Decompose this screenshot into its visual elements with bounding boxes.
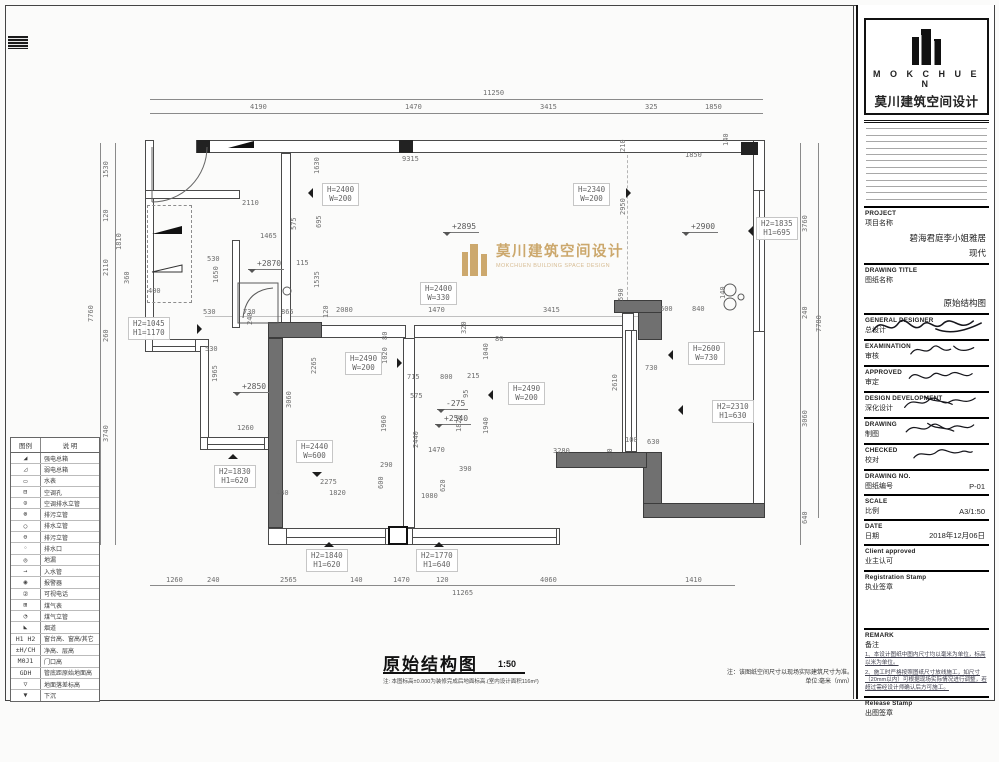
dim-label: 120 bbox=[323, 305, 330, 318]
dim-label: 3280 bbox=[553, 448, 570, 455]
dim-label: 730 bbox=[645, 365, 658, 372]
address-line bbox=[866, 148, 987, 149]
dim-label: 600 bbox=[660, 306, 673, 313]
spec-line2: H1=620 bbox=[311, 560, 343, 569]
legend-symbol-icon: ◦ bbox=[11, 543, 41, 553]
legend-row: ⊖排污立管 bbox=[11, 532, 99, 543]
spec-line1: H=2490 bbox=[513, 384, 540, 393]
legend-symbol-icon: ◉ bbox=[11, 577, 41, 587]
spec-line1: H=2440 bbox=[301, 442, 328, 451]
legend-header: 图例 说 明 bbox=[11, 438, 99, 453]
dim-label: 2275 bbox=[320, 479, 337, 486]
dim-label: 11250 bbox=[483, 90, 504, 97]
dim-label: 800 bbox=[440, 374, 453, 381]
address-line bbox=[866, 154, 987, 155]
leader-arrow-icon bbox=[434, 537, 444, 547]
spec-line2: H1=630 bbox=[717, 411, 749, 420]
spec-line1: H=2490 bbox=[350, 354, 377, 363]
legend-symbol-icon: → bbox=[11, 566, 41, 576]
dim-label: 2265 bbox=[311, 357, 318, 374]
address-line bbox=[866, 167, 987, 168]
legend-body: ◢强电总箱◿弱电总箱▭水表⊟空调孔⊙空调排水立管⊗排污立管○排水立管⊖排污立管◦… bbox=[11, 453, 99, 701]
entry-door-arc bbox=[152, 147, 207, 202]
dim-label: 4190 bbox=[250, 104, 267, 111]
dim-label: 210 bbox=[620, 139, 627, 152]
spec-label: H=2490W=200 bbox=[508, 382, 545, 405]
brand-logo-icon bbox=[460, 240, 490, 278]
dim-label: 100 bbox=[625, 437, 638, 444]
dim-label: 360 bbox=[124, 271, 131, 284]
dim-label: 80 bbox=[382, 332, 389, 340]
brand-buildings-icon bbox=[906, 27, 948, 67]
legend-label: 煤气表 bbox=[41, 601, 99, 610]
watermark-cn: 莫川建筑空间设计 bbox=[496, 240, 624, 261]
address-line bbox=[866, 180, 987, 181]
spec-line2: H1=695 bbox=[761, 228, 793, 237]
unit-note-line2: 单位:毫米（mm） bbox=[618, 678, 853, 687]
brand-logo-box: M O K C H U E N 莫川建筑空间设计 bbox=[864, 18, 989, 115]
spec-line2: W=200 bbox=[578, 194, 605, 203]
tb-section-registration-stamp: Registration Stamp执业签章 bbox=[864, 570, 989, 628]
dim-label: 240 bbox=[247, 312, 254, 325]
dim-label: 9315 bbox=[402, 156, 419, 163]
tb-section-drawing-no-: DRAWING NO.图纸编号P-01 bbox=[864, 469, 989, 494]
spec-line2: W=200 bbox=[350, 363, 377, 372]
dim-label: 2440 bbox=[413, 431, 420, 448]
legend-row: H1 H2窗台高、窗高/其它 bbox=[11, 634, 99, 645]
spec-line1: H=2400 bbox=[327, 185, 354, 194]
field-label-en: Release Stamp bbox=[865, 700, 988, 707]
spec-line2: H1=640 bbox=[421, 560, 453, 569]
field-label-en: SCALE bbox=[865, 498, 988, 505]
spec-label: H2=1840H1=620 bbox=[306, 549, 348, 572]
legend-symbol-icon: GDH bbox=[11, 668, 41, 678]
level-marker: -275 bbox=[437, 399, 468, 410]
dim-label: 575 bbox=[291, 217, 298, 230]
dim-label: 320 bbox=[461, 321, 468, 334]
spec-line2: H1=1170 bbox=[133, 328, 165, 337]
legend-row: ○排水立管 bbox=[11, 521, 99, 532]
dim-label: 325 bbox=[645, 104, 658, 111]
dim-label: 2080 bbox=[336, 307, 353, 314]
dim-label: 715 bbox=[407, 374, 420, 381]
field-label-en: Client approved bbox=[865, 548, 988, 555]
spec-label: H=2400W=330 bbox=[420, 282, 457, 305]
dim-label: 840 bbox=[692, 306, 705, 313]
field-label-en: DRAWING TITLE bbox=[865, 267, 988, 274]
legend-row: ▽地面落差标高 bbox=[11, 679, 99, 690]
plan-decorations bbox=[0, 0, 855, 706]
spec-label: H2=1830H1=620 bbox=[214, 465, 256, 488]
legend-symbol-icon: ⊞ bbox=[11, 600, 41, 610]
spec-line2: W=730 bbox=[693, 353, 720, 362]
dim-label: 7780 bbox=[816, 315, 823, 332]
legend-label: 排污立管 bbox=[41, 533, 99, 542]
legend-row: M0J1门口高 bbox=[11, 656, 99, 667]
legend-symbol-icon: ±H/CH bbox=[11, 645, 41, 655]
brand-name-en: M O K C H U E N bbox=[866, 69, 987, 89]
spec-line1: H=2400 bbox=[425, 284, 452, 293]
dim-label: 390 bbox=[459, 466, 472, 473]
legend-symbol-icon: ▭ bbox=[11, 476, 41, 486]
dim-label: 620 bbox=[440, 479, 447, 492]
legend-row: ◿弱电总箱 bbox=[11, 464, 99, 475]
dim-label: 330 bbox=[607, 448, 614, 461]
spec-line1: H2=1045 bbox=[133, 319, 165, 328]
legend-row: ◎地漏 bbox=[11, 555, 99, 566]
legend-symbol-icon: M0J1 bbox=[11, 656, 41, 666]
address-line bbox=[866, 173, 987, 174]
legend-row: ◢强电总箱 bbox=[11, 453, 99, 464]
field-value: A3/1:50 bbox=[959, 507, 987, 516]
watermark-en: MOKCHUEN BUILDING SPACE DESIGN bbox=[496, 263, 624, 269]
dim-label: 3060 bbox=[286, 391, 293, 408]
unit-note: 注：该图纸空间尺寸以现场实际建筑尺寸为准。 单位:毫米（mm） bbox=[618, 669, 853, 687]
field-label-cn: 出图签章 bbox=[865, 708, 988, 718]
legend-col-symbol: 图例 bbox=[11, 438, 41, 452]
legend-row: ⊙空调排水立管 bbox=[11, 498, 99, 509]
dim-label: 3060 bbox=[802, 410, 809, 427]
level-marker: +2850 bbox=[233, 382, 269, 393]
legend-label: 管底距原始地面高 bbox=[41, 668, 99, 677]
field-label-en: DATE bbox=[865, 523, 988, 530]
field-label-en: REMARK bbox=[865, 632, 988, 639]
dim-label: 140 bbox=[720, 286, 727, 299]
spec-line2: H1=620 bbox=[219, 476, 251, 485]
legend-symbol-icon: ◿ bbox=[11, 464, 41, 474]
dim-label: 2110 bbox=[103, 259, 110, 276]
dim-label: 1650 bbox=[213, 266, 220, 283]
signature bbox=[871, 313, 989, 339]
legend-label: 窗台高、窗高/其它 bbox=[41, 634, 99, 643]
dim-label: 1850 bbox=[685, 152, 702, 159]
dim-label: 95 bbox=[463, 390, 470, 398]
dim-label: 1810 bbox=[116, 233, 123, 250]
spec-label: H=2400W=200 bbox=[322, 183, 359, 206]
legend-label: 水表 bbox=[41, 476, 99, 485]
dim-label: 640 bbox=[802, 511, 809, 524]
remark-note: 1、本设计图纸中图内尺寸均以毫米为单位，标高以米为单位。 bbox=[865, 652, 988, 667]
titleblock-fields: PROJECT项目名称碧海君庭李小姐雅居现代DRAWING TITLE图纸名称原… bbox=[864, 206, 989, 762]
address-line bbox=[866, 128, 987, 129]
dim-label: 2610 bbox=[612, 374, 619, 391]
dim-label: 1260 bbox=[237, 425, 254, 432]
dim-label: 120 bbox=[436, 577, 449, 584]
spec-line2: W=200 bbox=[327, 194, 354, 203]
legend-row: ◦排水口 bbox=[11, 543, 99, 554]
legend-symbol-icon: ○ bbox=[11, 521, 41, 531]
dim-label: 530 bbox=[205, 346, 218, 353]
leader-arrow-icon bbox=[663, 350, 673, 360]
leader-arrow-icon bbox=[303, 188, 313, 198]
tb-section-date: DATE日期2018年12月06日 bbox=[864, 519, 989, 544]
legend-symbol-icon: ◣ bbox=[11, 622, 41, 632]
strong-electric-icon bbox=[152, 226, 182, 234]
field-value: 原始结构图 bbox=[865, 297, 988, 309]
leader-arrow-icon bbox=[397, 358, 407, 368]
dim-label: 115 bbox=[296, 260, 309, 267]
legend-symbol-icon: ◔ bbox=[11, 611, 41, 621]
brand-name-cn: 莫川建筑空间设计 bbox=[866, 91, 987, 110]
spec-line2: W=200 bbox=[513, 393, 540, 402]
dim-label: 1940 bbox=[483, 417, 490, 434]
drawing-scale: 1:50 bbox=[498, 659, 516, 669]
dim-label: 3760 bbox=[802, 215, 809, 232]
leader-arrow-icon bbox=[483, 390, 493, 400]
level-marker: +2895 bbox=[443, 222, 479, 233]
dim-label: 140 bbox=[723, 133, 730, 146]
legend-label: 烟道 bbox=[41, 623, 99, 632]
legend-row: ◉报警器 bbox=[11, 577, 99, 588]
tb-section-scale: SCALE比例A3/1:50 bbox=[864, 494, 989, 519]
spec-line2: W=330 bbox=[425, 293, 452, 302]
title-underline bbox=[383, 672, 525, 674]
legend-label: 门口高 bbox=[41, 657, 99, 666]
dim-label: 2950 bbox=[620, 198, 627, 215]
dim-label: 140 bbox=[350, 577, 363, 584]
legend-symbol-icon: ⊟ bbox=[11, 487, 41, 497]
legend-row: ±H/CH净高、层高 bbox=[11, 645, 99, 656]
spec-label: H2=2310H1=630 bbox=[712, 400, 754, 423]
leader-arrow-icon bbox=[197, 324, 207, 334]
dim-label: 575 bbox=[410, 393, 423, 400]
field-label-cn: 项目名称 bbox=[865, 218, 988, 228]
tb-section-design-development: DESIGN DEVELOPMENT深化设计 bbox=[864, 391, 989, 417]
address-line bbox=[866, 186, 987, 187]
dim-label: 590 bbox=[618, 288, 625, 301]
legend-label: 排污立管 bbox=[41, 510, 99, 519]
dim-label: 3415 bbox=[540, 104, 557, 111]
legend-table: 图例 说 明 ◢强电总箱◿弱电总箱▭水表⊟空调孔⊙空调排水立管⊗排污立管○排水立… bbox=[10, 437, 100, 702]
spec-label: H2=1045H1=1170 bbox=[128, 317, 170, 340]
spec-label: H=2490W=200 bbox=[345, 352, 382, 375]
title-note: 注: 本图标高±0.000为装修完成后地面标高.(室内设计面积116m²) bbox=[383, 677, 539, 685]
divider bbox=[864, 120, 989, 123]
dim-label: 1535 bbox=[314, 271, 321, 288]
spec-line1: H=2600 bbox=[693, 344, 720, 353]
legend-label: 煤气立管 bbox=[41, 612, 99, 621]
dim-label: 865 bbox=[281, 309, 294, 316]
leader-arrow-icon bbox=[626, 188, 636, 198]
dim-label: 1965 bbox=[212, 365, 219, 382]
dim-label: 630 bbox=[647, 439, 660, 446]
spec-label: H=2600W=730 bbox=[688, 342, 725, 365]
address-line bbox=[866, 141, 987, 142]
field-value: P-01 bbox=[969, 482, 987, 491]
spec-label: H2=1835H1=695 bbox=[756, 217, 798, 240]
weak-electric-icon bbox=[152, 265, 182, 272]
electric-box-icon bbox=[228, 141, 254, 148]
signature bbox=[897, 443, 989, 465]
legend-symbol-icon: ② bbox=[11, 589, 41, 599]
leader-arrow-icon bbox=[673, 405, 683, 415]
field-label-en: Registration Stamp bbox=[865, 574, 988, 581]
address-line bbox=[866, 160, 987, 161]
legend-label: 地漏 bbox=[41, 555, 99, 564]
shower-tray bbox=[238, 283, 278, 323]
dim-label: 240 bbox=[802, 306, 809, 319]
legend-label: 可视电话 bbox=[41, 589, 99, 598]
field-label-en: PROJECT bbox=[865, 210, 988, 217]
dim-label: 215 bbox=[467, 373, 480, 380]
tb-section-release-stamp: Release Stamp出图签章 bbox=[864, 696, 989, 762]
dim-label: 4060 bbox=[540, 577, 557, 584]
legend-symbol-icon: ◢ bbox=[11, 453, 41, 463]
spec-label: H=2340W=200 bbox=[573, 183, 610, 206]
legend-label: 报警器 bbox=[41, 578, 99, 587]
legend-row: ②可视电话 bbox=[11, 589, 99, 600]
dim-label: 1530 bbox=[103, 161, 110, 178]
dim-label: 290 bbox=[380, 462, 393, 469]
legend-row: ▭水表 bbox=[11, 476, 99, 487]
spec-line1: H2=1835 bbox=[761, 219, 793, 228]
dim-label: 1260 bbox=[166, 577, 183, 584]
signature bbox=[897, 417, 989, 439]
field-label-cn: 业主认可 bbox=[865, 556, 988, 566]
legend-label: 强电总箱 bbox=[41, 454, 99, 463]
dim-label: 1630 bbox=[314, 157, 321, 174]
field-label-en: DRAWING NO. bbox=[865, 473, 988, 480]
spec-label: H2=1770H1=640 bbox=[416, 549, 458, 572]
address-line bbox=[866, 199, 987, 200]
legend-label: 弱电总箱 bbox=[41, 465, 99, 474]
dim-label: 1020 bbox=[382, 347, 389, 364]
legend-symbol-icon: ⊖ bbox=[11, 532, 41, 542]
dim-label: 80 bbox=[495, 336, 503, 343]
dim-label: 11265 bbox=[452, 590, 473, 597]
legend-label: 地面落差标高 bbox=[41, 680, 99, 689]
signature bbox=[897, 339, 989, 361]
dim-label: 1820 bbox=[329, 490, 346, 497]
spec-line1: H2=2310 bbox=[717, 402, 749, 411]
dim-label: 400 bbox=[148, 288, 161, 295]
dim-label: 1040 bbox=[483, 343, 490, 360]
dim-label: 1470 bbox=[428, 447, 445, 454]
address-lines bbox=[864, 128, 989, 199]
pipe-icon bbox=[738, 294, 744, 300]
tb-section-client-approved: Client approved业主认可 bbox=[864, 544, 989, 570]
spec-line1: H2=1840 bbox=[311, 551, 343, 560]
tb-section-examination: EXAMINATION审核 bbox=[864, 339, 989, 365]
dim-label: 260 bbox=[103, 329, 110, 342]
dim-label: 600 bbox=[378, 476, 385, 489]
legend-label: 空调排水立管 bbox=[41, 499, 99, 508]
legend-symbol-icon: H1 H2 bbox=[11, 634, 41, 644]
spec-line1: H2=1770 bbox=[421, 551, 453, 560]
leader-arrow-icon bbox=[743, 226, 753, 236]
dim-label: 1465 bbox=[260, 233, 277, 240]
pipe-icon bbox=[724, 298, 736, 310]
dim-label: 695 bbox=[316, 215, 323, 228]
address-line bbox=[866, 135, 987, 136]
legend-row: ⊗排污立管 bbox=[11, 509, 99, 520]
legend-label: 净高、层高 bbox=[41, 646, 99, 655]
unit-note-line1: 注：该图纸空间尺寸以现场实际建筑尺寸为准。 bbox=[618, 669, 853, 678]
spec-line2: W=600 bbox=[301, 451, 328, 460]
spec-line1: H2=1830 bbox=[219, 467, 251, 476]
signature bbox=[897, 391, 989, 413]
field-value: 2018年12月06日 bbox=[929, 530, 987, 541]
dim-label: 3740 bbox=[103, 425, 110, 442]
field-label-cn: 备注 bbox=[865, 640, 988, 650]
leader-arrow-icon bbox=[228, 449, 238, 459]
dim-label: 1080 bbox=[421, 493, 438, 500]
floor-plan: 莫川建筑空间设计 MOKCHUEN BUILDING SPACE DESIGN … bbox=[0, 0, 855, 706]
field-value: 碧海君庭李小姐雅居 bbox=[865, 232, 988, 244]
dim-label: 440 bbox=[276, 490, 289, 497]
signature bbox=[897, 365, 989, 387]
legend-row: ◣烟道 bbox=[11, 622, 99, 633]
tb-section-approved: APPROVED审定 bbox=[864, 365, 989, 391]
legend-row: ⊞煤气表 bbox=[11, 600, 99, 611]
spec-label: H=2440W=600 bbox=[296, 440, 333, 463]
tb-section-drawing: DRAWING制图 bbox=[864, 417, 989, 443]
tb-section-project: PROJECT项目名称碧海君庭李小姐雅居现代 bbox=[864, 206, 989, 263]
tb-section-drawing-title: DRAWING TITLE图纸名称原始结构图 bbox=[864, 263, 989, 313]
remark-note: 2、施工时严格按照图纸尺寸放线施工，如尺寸（20mm以内）可根据现场实际情况进行… bbox=[865, 670, 988, 693]
legend-symbol-icon: ◎ bbox=[11, 555, 41, 565]
brand-watermark: 莫川建筑空间设计 MOKCHUEN BUILDING SPACE DESIGN bbox=[460, 240, 650, 278]
dim-label: 2110 bbox=[242, 200, 259, 207]
level-marker: +2900 bbox=[682, 222, 718, 233]
legend-label: 下沉 bbox=[41, 691, 99, 700]
dim-label: 3415 bbox=[543, 307, 560, 314]
tb-section-general-designer: GENERAL DESIGNER总设计 bbox=[864, 313, 989, 339]
leader-arrow-icon bbox=[324, 537, 334, 547]
field-label-cn: 执业签章 bbox=[865, 582, 988, 592]
legend-row: ◔煤气立管 bbox=[11, 611, 99, 622]
dim-label: 7760 bbox=[88, 305, 95, 322]
leader-arrow-icon bbox=[312, 472, 322, 482]
title-block: M O K C H U E N 莫川建筑空间设计 PROJECT项目名称碧海君庭… bbox=[856, 5, 994, 699]
tb-section-remark: REMARK备注1、本设计图纸中图内尺寸均以毫米为单位，标高以米为单位。2、施工… bbox=[864, 628, 989, 697]
spec-line1: H=2340 bbox=[578, 185, 605, 194]
legend-symbol-icon: ▽ bbox=[11, 679, 41, 689]
dim-label: 1470 bbox=[428, 307, 445, 314]
legend-label: 排水口 bbox=[41, 544, 99, 553]
legend-row: GDH管底距原始地面高 bbox=[11, 668, 99, 679]
tb-section-checked: CHECKED校对 bbox=[864, 443, 989, 469]
legend-row: ▼下沉 bbox=[11, 690, 99, 700]
level-marker: +2870 bbox=[248, 259, 284, 270]
legend-label: 入水管 bbox=[41, 567, 99, 576]
dim-label: 120 bbox=[103, 209, 110, 222]
dim-label: 530 bbox=[207, 256, 220, 263]
dim-label: 1470 bbox=[393, 577, 410, 584]
dim-label: 1960 bbox=[381, 415, 388, 432]
dim-label: 530 bbox=[203, 309, 216, 316]
legend-symbol-icon: ⊙ bbox=[11, 498, 41, 508]
dim-label: 1850 bbox=[705, 104, 722, 111]
faucet-icon bbox=[283, 287, 291, 295]
legend-row: ⊟空调孔 bbox=[11, 487, 99, 498]
dim-label: 1470 bbox=[405, 104, 422, 111]
legend-label: 排水立管 bbox=[41, 521, 99, 530]
legend-col-desc: 说 明 bbox=[41, 438, 99, 452]
legend-symbol-icon: ⊗ bbox=[11, 509, 41, 519]
dim-label: 1410 bbox=[685, 577, 702, 584]
field-label-cn: 图纸名称 bbox=[865, 275, 988, 285]
dim-label: 240 bbox=[207, 577, 220, 584]
legend-symbol-icon: ▼ bbox=[11, 690, 41, 700]
legend-label: 空调孔 bbox=[41, 488, 99, 497]
dim-label: 2565 bbox=[280, 577, 297, 584]
field-value2: 现代 bbox=[865, 247, 988, 259]
address-line bbox=[866, 192, 987, 193]
legend-row: →入水管 bbox=[11, 566, 99, 577]
